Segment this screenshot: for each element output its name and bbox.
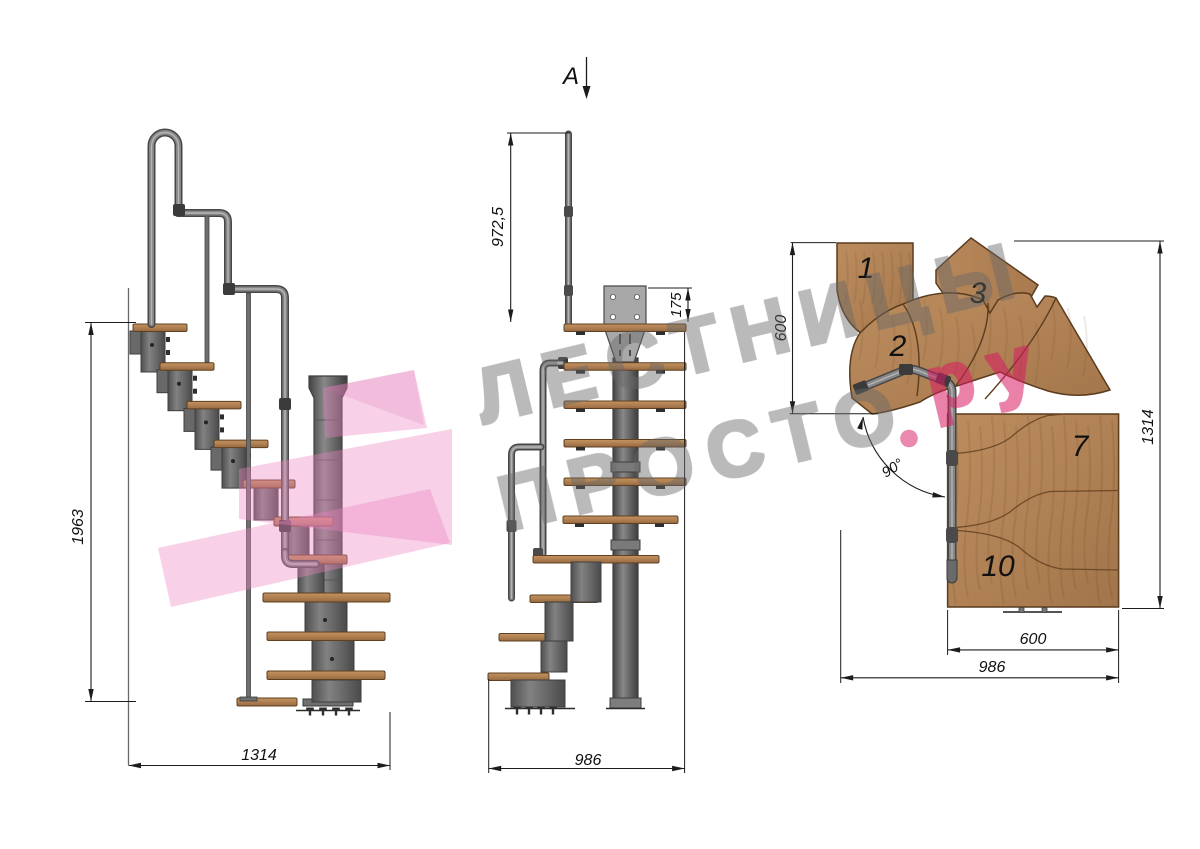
svg-text:986: 986 xyxy=(979,659,1006,676)
svg-text:972,5: 972,5 xyxy=(490,207,507,247)
svg-text:1963: 1963 xyxy=(70,509,87,545)
svg-text:1314: 1314 xyxy=(1140,409,1157,445)
svg-text:10: 10 xyxy=(981,550,1015,583)
svg-text:A: A xyxy=(561,63,579,90)
svg-text:7: 7 xyxy=(1072,430,1090,463)
svg-text:986: 986 xyxy=(575,752,602,769)
svg-text:600: 600 xyxy=(1020,631,1047,648)
svg-text:1314: 1314 xyxy=(241,747,277,764)
